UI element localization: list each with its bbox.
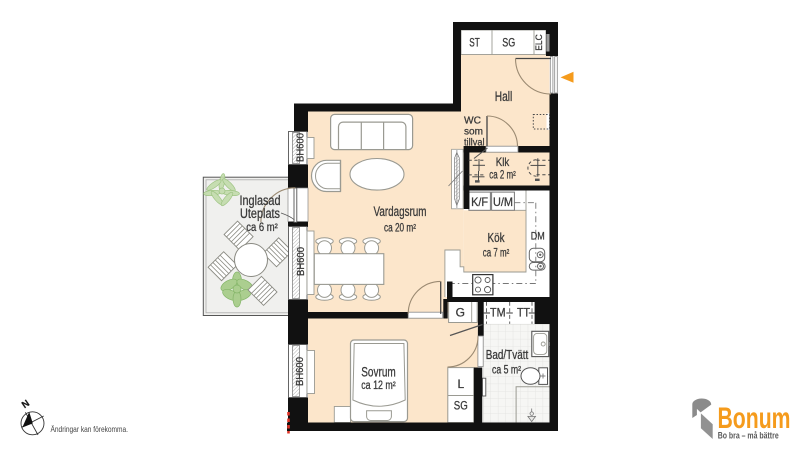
svg-text:L: L: [457, 377, 464, 391]
svg-text:tillval: tillval: [464, 138, 485, 149]
svg-text:G: G: [456, 306, 465, 320]
svg-text:U/M: U/M: [493, 195, 513, 209]
svg-text:WC: WC: [464, 116, 481, 127]
svg-text:SG: SG: [454, 399, 468, 413]
svg-text:Bad/Tvätt: Bad/Tvätt: [486, 348, 529, 362]
svg-text:ca 20 m²: ca 20 m²: [384, 223, 416, 235]
svg-text:BH600: BH600: [296, 133, 307, 162]
svg-text:Hall: Hall: [495, 89, 513, 104]
svg-text:Bo bra – må bättre: Bo bra – må bättre: [718, 431, 779, 441]
svg-text:BH600: BH600: [296, 247, 307, 276]
svg-text:TM: TM: [490, 306, 506, 320]
svg-text:Vardagsrum: Vardagsrum: [374, 204, 427, 219]
svg-text:Uteplats: Uteplats: [240, 206, 280, 221]
svg-text:TT: TT: [517, 306, 531, 320]
svg-text:ca 6 m²: ca 6 m²: [246, 222, 278, 234]
svg-text:ca 5 m²: ca 5 m²: [492, 364, 521, 376]
svg-text:DM: DM: [531, 230, 545, 242]
svg-text:ELC: ELC: [534, 34, 545, 51]
svg-text:som: som: [464, 127, 483, 138]
svg-text:ST: ST: [469, 36, 480, 50]
svg-text:BH600: BH600: [295, 357, 306, 386]
svg-text:Kök: Kök: [488, 231, 506, 245]
svg-text:ca 12 m²: ca 12 m²: [361, 380, 396, 392]
svg-text:Ändringar kan förekomma.: Ändringar kan förekomma.: [51, 425, 129, 434]
svg-text:Sovrum: Sovrum: [361, 365, 396, 380]
svg-text:K/F: K/F: [471, 195, 488, 209]
svg-text:ca 2 m²: ca 2 m²: [489, 170, 516, 182]
svg-text:SG: SG: [502, 36, 515, 50]
svg-text:Klk: Klk: [496, 155, 510, 169]
svg-text:ca 7 m²: ca 7 m²: [483, 248, 510, 260]
